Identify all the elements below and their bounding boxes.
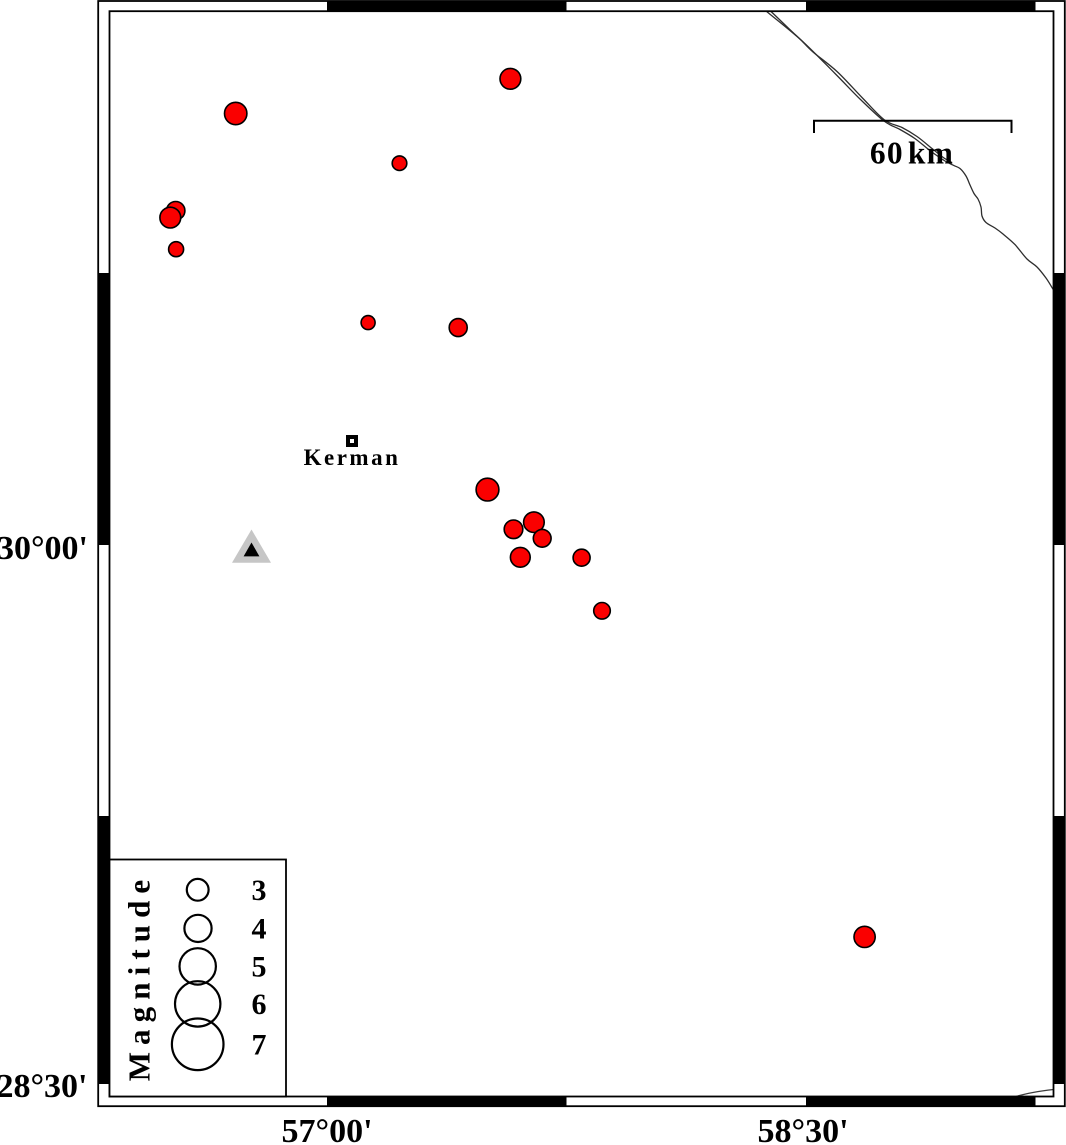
svg-text:5: 5 <box>252 951 267 984</box>
svg-text:Magnitude: Magnitude <box>122 873 157 1082</box>
svg-text:60 km: 60 km <box>870 136 954 171</box>
svg-text:6: 6 <box>252 988 267 1021</box>
svg-text:Kerman: Kerman <box>304 445 401 470</box>
svg-text:58°30': 58°30' <box>757 1113 848 1145</box>
svg-text:57°00': 57°00' <box>281 1113 372 1145</box>
svg-text:4: 4 <box>252 913 267 946</box>
svg-text:3: 3 <box>252 874 267 907</box>
svg-text:7: 7 <box>252 1029 267 1062</box>
svg-text:28°30': 28°30' <box>0 1068 88 1105</box>
svg-text:30°00': 30°00' <box>0 530 88 567</box>
